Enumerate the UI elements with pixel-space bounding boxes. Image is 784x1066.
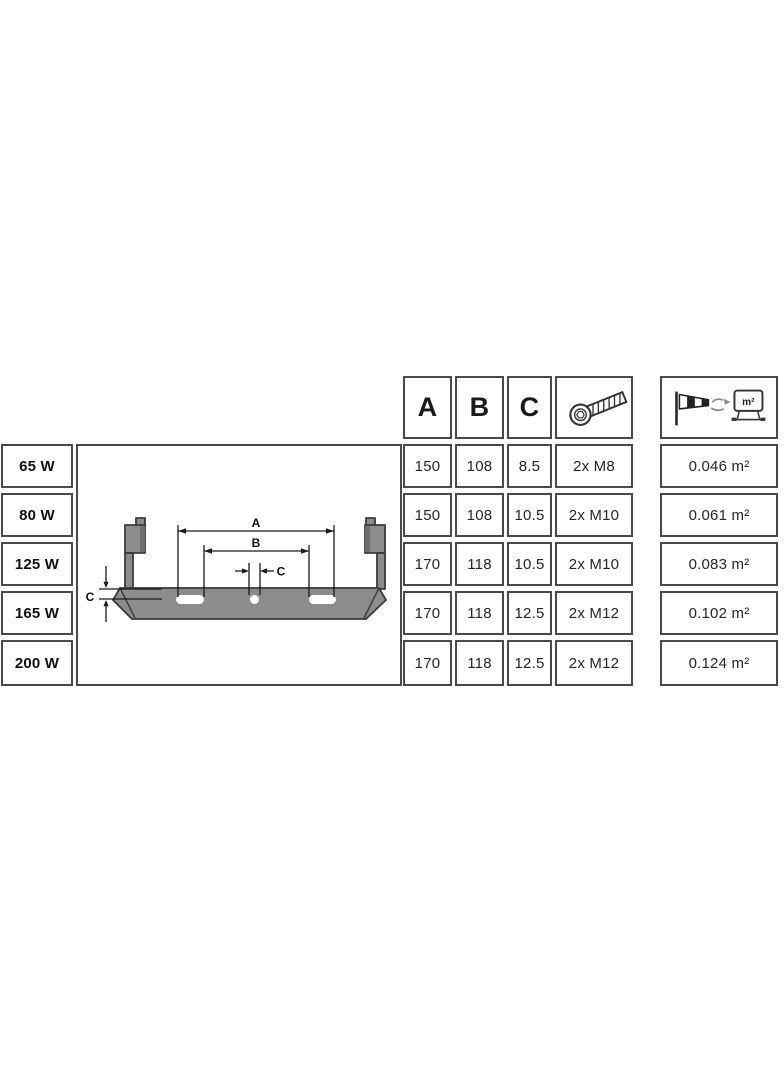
windsock-icon: m² — [662, 379, 776, 436]
column-header-screw — [555, 376, 633, 439]
cell-wind-area: 0.083 m² — [660, 542, 778, 586]
dim-c-thickness-label: C — [86, 590, 95, 604]
cell-a: 170 — [403, 591, 452, 635]
floodlight-area-icon: m² — [732, 391, 766, 421]
arm-fold-shade-left — [140, 526, 145, 552]
svg-text:m²: m² — [742, 397, 755, 408]
arm-fold-shade-right — [365, 526, 370, 552]
column-header-wind-load-area: m² — [660, 376, 778, 439]
column-header-c: C — [507, 376, 552, 439]
cell-c: 8.5 — [507, 444, 552, 488]
cell-c: 10.5 — [507, 542, 552, 586]
cell-c: 12.5 — [507, 640, 552, 686]
wattage-label: 80 W — [1, 493, 73, 537]
cell-wind-area: 0.124 m² — [660, 640, 778, 686]
column-header-a: A — [403, 376, 452, 439]
cell-b: 108 — [455, 493, 504, 537]
dim-b-label: B — [252, 536, 261, 550]
cell-a: 170 — [403, 640, 452, 686]
wind-gust-arrows — [711, 399, 730, 410]
datasheet-mounting-table: A B C m² — [0, 0, 784, 1066]
dim-a-label: A — [252, 516, 261, 530]
cell-b: 108 — [455, 444, 504, 488]
cell-wind-area: 0.046 m² — [660, 444, 778, 488]
center-hole — [250, 595, 259, 604]
wattage-label: 165 W — [1, 591, 73, 635]
cell-screws: 2x M12 — [555, 640, 633, 686]
cell-c: 12.5 — [507, 591, 552, 635]
screw-icon — [558, 379, 630, 436]
column-header-b: B — [455, 376, 504, 439]
cell-wind-area: 0.061 m² — [660, 493, 778, 537]
cell-screws: 2x M10 — [555, 542, 633, 586]
bracket-drawing: A B C C — [78, 446, 400, 684]
cell-b: 118 — [455, 542, 504, 586]
cell-screws: 2x M10 — [555, 493, 633, 537]
cell-b: 118 — [455, 591, 504, 635]
cell-c: 10.5 — [507, 493, 552, 537]
wattage-label: 125 W — [1, 542, 73, 586]
slot-hole-left — [176, 595, 204, 604]
cell-b: 118 — [455, 640, 504, 686]
mounting-bracket-diagram: A B C C — [76, 444, 402, 686]
wattage-label: 65 W — [1, 444, 73, 488]
cell-screws: 2x M12 — [555, 591, 633, 635]
cell-wind-area: 0.102 m² — [660, 591, 778, 635]
cell-a: 150 — [403, 444, 452, 488]
cell-a: 170 — [403, 542, 452, 586]
cell-a: 150 — [403, 493, 452, 537]
dim-c-hole-label: C — [277, 565, 286, 579]
cell-screws: 2x M8 — [555, 444, 633, 488]
slot-hole-right — [309, 595, 336, 604]
wattage-label: 200 W — [1, 640, 73, 686]
